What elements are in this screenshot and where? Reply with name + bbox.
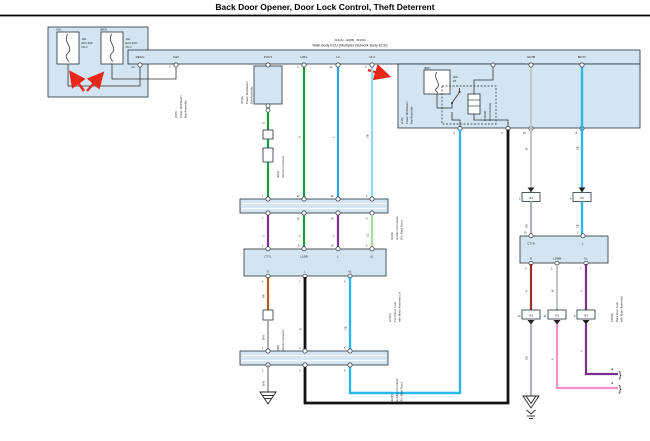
- relay-fuse-tag: (BAT): [424, 66, 431, 70]
- wlabel-g1: G: [262, 122, 266, 124]
- fuse2-amp: 10A: [126, 37, 131, 41]
- relay-label2: UNLOCK Relay: [488, 102, 492, 121]
- inline-component: [263, 148, 273, 162]
- wlabel-wb2: W-B: [262, 381, 266, 386]
- lh-pin-lsdb: LSDB: [300, 255, 307, 259]
- fusebox-assembly-line2: Box Assembly: [184, 100, 188, 118]
- ecu-code: J14(A), J24(B), J31(M): [334, 38, 365, 42]
- fuse-ecu-dcc: [101, 32, 123, 64]
- fuse1-amp: 10A: [82, 37, 87, 41]
- ik3-a-num: 12: [518, 314, 521, 318]
- ik1-right-label: IK1: [580, 196, 584, 200]
- lh-bn0: 4: [262, 280, 264, 284]
- wlabel-sb2: SB: [344, 326, 348, 330]
- fuse2-no: NO.2: [126, 45, 133, 49]
- relay-pin-num-3: 10: [523, 131, 526, 135]
- pin-ul3: UL3: [369, 55, 375, 59]
- wlabel-sbr1: SB: [576, 146, 580, 150]
- jb2-tn1: 3: [299, 346, 301, 350]
- bk-bn0: 4: [525, 267, 527, 271]
- wlabel-p: P: [551, 358, 555, 360]
- wlabel-l: L: [332, 136, 336, 138]
- ik3-c-num: 5: [574, 314, 576, 318]
- ecu-name: Main Body ECU (Multiplex Network Body EC…: [312, 44, 387, 48]
- ik3-a-label: IK3: [529, 313, 533, 317]
- bk-bn1: 1: [551, 267, 553, 271]
- ik1-left-num: 1: [519, 197, 521, 201]
- jb2-tn2: 5: [344, 346, 346, 350]
- wlabel-lg: LG: [366, 234, 370, 237]
- jb1-code: I10(A): [390, 232, 394, 240]
- fuse-box: (IG) (BAT) 10A ECU-IGR NO.2 10A ECU-DCC …: [48, 27, 188, 118]
- lh-line1: Front Door Lock: [393, 301, 397, 322]
- jb1-bn0: 7: [262, 217, 264, 221]
- wlabel-v3: V: [580, 290, 584, 292]
- bk-pin-ctyb: CTYB: [527, 242, 535, 246]
- lower-right-wires: R W V IK3 IK3 IK3 12 11 5 GR P V } * } *: [518, 264, 622, 396]
- lh-tn0: 1: [262, 244, 264, 248]
- relay-box: (J15) Power Distribution Box Assembly (B…: [398, 63, 640, 135]
- lh-line2: with Motor Assembly LH: [398, 292, 402, 322]
- lh-tn1: 8: [298, 244, 300, 248]
- jb2-bn0: 1: [262, 369, 264, 373]
- jb1-tn1: 13: [297, 194, 300, 198]
- jc-brown-connector: [263, 310, 273, 320]
- fuse-ecu-igr: [57, 32, 79, 64]
- bk-bn2: 7: [580, 267, 582, 271]
- jb1-line1: Junction Connector: [395, 216, 399, 240]
- wire-violet-4: [586, 324, 618, 374]
- ik3-b-label: IK3: [555, 313, 559, 317]
- fuse1-no: NO.2: [82, 45, 89, 49]
- bk-tn0: 10: [524, 231, 527, 235]
- wlabel-g2: G: [298, 136, 302, 138]
- jb1-tn0: 7: [262, 194, 264, 198]
- relay-fuse-name: P/I: [453, 79, 456, 83]
- wlabel-r: R: [525, 290, 529, 292]
- pin-l2: L2: [336, 55, 340, 59]
- bk-line2: with Motor Assembly: [620, 296, 624, 322]
- bk-line1: Back Door Lock: [615, 302, 619, 322]
- pin-num-igr: 7: [169, 65, 171, 69]
- lh-pin-ul2: UL: [348, 270, 352, 274]
- fuse2-tag: (BAT): [100, 28, 107, 32]
- brace-pink: }: [619, 384, 622, 394]
- jb2-bn2: 5: [344, 369, 346, 373]
- jb2-line2: (For Back Door): [400, 382, 404, 402]
- pin-actb: ACTB: [527, 55, 535, 59]
- wire-pink: [557, 324, 618, 388]
- wlabel-v1: V: [262, 235, 266, 237]
- pin-l5fl: L5FL: [300, 55, 307, 59]
- lh-tn3: 5: [366, 244, 368, 248]
- bk-tn1: 6: [577, 231, 579, 235]
- fuse1-tag: (IG): [56, 28, 61, 32]
- jb1-line2: (For Back Door): [400, 220, 404, 240]
- ik1-right-num: 9: [570, 197, 572, 201]
- lh-tn2: 10: [331, 244, 334, 248]
- pin-num-ul3: 4: [365, 65, 367, 69]
- lh-bn1: 7: [299, 280, 301, 284]
- jb2-line1: Junction Connector: [395, 378, 399, 402]
- relay-pin-num-1: 3: [454, 131, 456, 135]
- lh-bn2: 9: [344, 280, 346, 284]
- relaybox-line1: Power Distribution: [405, 101, 409, 124]
- brace-violet: }: [619, 370, 622, 380]
- wlabel-br: BR: [262, 294, 266, 298]
- fuse1-name: ECU-IGR: [82, 41, 93, 45]
- inline-connector-1: [263, 130, 273, 139]
- relay-fuse-amp: 30A: [453, 75, 458, 79]
- pdb-code: I15(A): [240, 96, 244, 104]
- relaybox-line2: Box Assembly: [410, 106, 414, 124]
- inline-code: I12(A): [276, 171, 280, 178]
- wlabel-g3: G: [298, 235, 302, 237]
- bk-pin-lswb: LSWB: [553, 257, 561, 261]
- wlabel-sb: SB: [366, 134, 370, 138]
- jb2-code: I16(B): [390, 394, 394, 402]
- wlabel-grmid: GR: [525, 224, 529, 228]
- wlabel-w2: W: [551, 289, 555, 292]
- wlabel-v4: V: [580, 350, 584, 352]
- fusebox-assembly-line1: Power Distribution: [179, 95, 183, 118]
- bk-pin-e: E: [530, 257, 532, 261]
- wlabel-w: W: [525, 147, 529, 150]
- jc-brown-name: Junction Connector: [281, 330, 285, 352]
- pdb-line2: Box Assembly: [250, 86, 254, 104]
- pin-num-l2: 24: [330, 65, 333, 69]
- bk-pin-ul: UL: [584, 257, 588, 261]
- bk-code: P05(B): [610, 313, 614, 322]
- relay-label1: D DOOR: [483, 110, 487, 121]
- fusebox-assembly-code: (F25): [174, 111, 178, 118]
- junction-bar-1: 7 13 14 4 7 13 14 4 I10(A) Junction Conn…: [240, 194, 404, 240]
- page-title: Back Door Opener, Door Lock Control, The…: [215, 2, 434, 12]
- pin-puct: PUCT: [264, 55, 273, 59]
- wlabel-wb1: W-B: [262, 335, 266, 340]
- wlabel-grlow: GR: [525, 356, 529, 360]
- relay-coil: [468, 94, 480, 114]
- pin-bcty: BCTY: [578, 55, 586, 59]
- wlabel-v2: V: [332, 235, 336, 237]
- fuse2-name: ECU-DCC: [126, 41, 138, 45]
- lh-pin-e: E: [267, 270, 269, 274]
- jb2-bn1: 3: [299, 369, 301, 373]
- jb1-tn2: 14: [331, 194, 334, 198]
- jb1-bn2: 14: [331, 217, 334, 221]
- relaybox-code: (J15): [400, 118, 404, 124]
- jb2-tn0: 1: [262, 346, 264, 350]
- pin-num-l5fl: 4: [297, 65, 299, 69]
- jb1-bn1: 13: [297, 217, 300, 221]
- lh-code: L07(C): [388, 313, 392, 322]
- ik1-left-label: IK1: [529, 196, 533, 200]
- lock-assembly-back: CTYB L E LSWB UL 10 6 4 1 7 P05(B) Back …: [520, 231, 624, 323]
- lh-pin-ul: UL: [370, 255, 374, 259]
- pin-recu: RECU: [136, 55, 145, 59]
- inline-name: Junction Connector: [281, 156, 285, 178]
- ground-right: [523, 396, 539, 419]
- ik3-b-num: 11: [544, 314, 547, 318]
- wlabel-sbr2: SB: [576, 224, 580, 228]
- jb1-tn3: 4: [366, 194, 368, 198]
- pin-igr: IGR: [173, 55, 179, 59]
- pdb-connector: I15(A) Power Distribution Box Assembly: [240, 66, 282, 112]
- relay-pin-num-4: 8: [576, 131, 578, 135]
- pdb-line1: Power Distribution: [245, 81, 249, 104]
- jb1-bn3: 4: [366, 217, 368, 221]
- wlabel-b: B: [299, 328, 303, 330]
- relay-pin-num-2: 2: [502, 131, 504, 135]
- mid-wires: V G V LG: [262, 215, 373, 248]
- ik3-c-label: IK3: [584, 313, 588, 317]
- wiring-diagram: Back Door Opener, Door Lock Control, The…: [0, 0, 650, 441]
- fuse-30a: [424, 70, 450, 94]
- lh-pin-ctyl: CTYL: [264, 255, 272, 259]
